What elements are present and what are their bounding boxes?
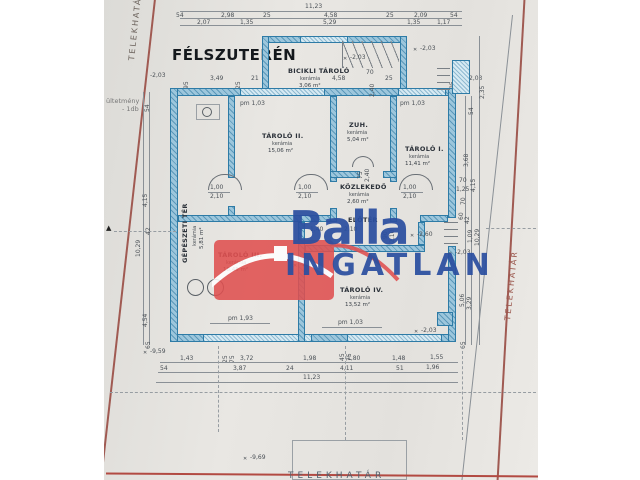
site-dash-line <box>218 346 219 432</box>
boundary-label-right: TELEKHATÁR <box>503 250 519 321</box>
reference-dash-line <box>486 228 536 229</box>
reference-dash-line <box>114 231 176 232</box>
window-label: pm 1,93 <box>228 315 253 322</box>
window-label: pm 1,03 <box>338 319 363 326</box>
property-boundary-line-right <box>496 0 525 480</box>
exterior-steps <box>437 64 450 90</box>
dim-label: 21 <box>251 75 259 82</box>
dim-label: 1,98 <box>303 355 316 362</box>
level-marker-icon: ✕ <box>414 329 418 335</box>
level-marker-icon: ✕ <box>343 56 347 62</box>
dim-label: 1,48 <box>392 355 405 362</box>
door-width: 75 <box>357 171 364 179</box>
dim-label: 1,09 <box>467 230 474 243</box>
dim-label: 1,80 <box>347 355 360 362</box>
dim-label: 4,15 <box>142 194 149 207</box>
door-height: 2,10 <box>298 193 311 200</box>
level-label: -9,59 <box>150 348 166 355</box>
room-area: 5,81 m² <box>199 227 205 249</box>
dim-label: 1,17 <box>437 19 450 26</box>
scanned-floor-plan: TELEKHATÁR TELEKHATÁR FÉLSZUTERÉN ültetm… <box>0 0 640 480</box>
sink-basin <box>202 107 212 117</box>
room-name-taroloi: TÁROLÓ I. <box>405 145 444 153</box>
dim-label: 1,35 <box>407 19 420 26</box>
dim-label: 11,23 <box>305 3 322 10</box>
wall <box>262 36 269 96</box>
wall <box>170 88 178 342</box>
level-label: -2,03 <box>150 72 166 79</box>
dim-label: 1,55 <box>430 354 443 361</box>
dim-label: 25 <box>385 75 393 82</box>
dim-label: 10,29 <box>135 240 142 257</box>
dim-label: 1,35 <box>240 19 253 26</box>
dim-label: 5,06 <box>459 294 466 307</box>
room-name-kozlekedo: KÖZLEKEDŐ <box>340 183 387 191</box>
level-label: -2,60 <box>417 231 433 238</box>
dim-label: 70 <box>366 69 374 76</box>
dim-label: 4,15 <box>470 179 477 192</box>
dim-label: 2,98 <box>221 12 234 19</box>
window <box>203 334 312 342</box>
level-label: -2,03 <box>420 45 436 52</box>
dim-label: 1,96 <box>426 364 439 371</box>
level-marker-icon: ✕ <box>413 47 417 53</box>
room-finish: kerámia <box>349 192 369 198</box>
dim-label: 54 <box>450 12 458 19</box>
dim-line <box>149 92 150 345</box>
dim-label: 2,40 <box>369 84 376 97</box>
window <box>240 88 325 96</box>
room-finish: kerámia <box>347 130 367 136</box>
washer-symbol <box>187 279 204 296</box>
dim-label: 54 <box>176 12 184 19</box>
room-area: 13,52 m² <box>345 302 370 308</box>
door-height: 2,10 <box>210 193 223 200</box>
dim-label: 24 <box>286 365 294 372</box>
dim-label: 4,58 <box>324 12 337 19</box>
level-label: -2,03 <box>421 327 437 334</box>
boundary-label-left: TELEKHATÁR <box>127 0 143 61</box>
wall <box>437 312 453 326</box>
room-area: 15,06 m² <box>268 148 293 154</box>
dim-label: 54 <box>468 107 475 115</box>
door-height: 2,10 <box>403 193 416 200</box>
watermark-brand-subtext: INGATLAN <box>285 250 495 282</box>
room-area: 11,41 m² <box>405 161 430 167</box>
dim-label: 5,29 <box>323 19 336 26</box>
room-name-zuh: ZUH. <box>349 121 368 129</box>
window <box>347 334 442 342</box>
dim-line <box>143 92 144 345</box>
level-label: -2,03 <box>350 54 366 61</box>
dim-label: 2,03 <box>469 75 482 82</box>
room-area: 5,04 m² <box>347 137 369 143</box>
dim-line <box>160 362 458 363</box>
dim-label: 3,29 <box>466 297 473 310</box>
dim-label: 3,68 <box>463 154 470 167</box>
entry-steps <box>444 218 458 244</box>
dim-line <box>479 36 480 345</box>
dim-label: 2,35 <box>479 86 486 99</box>
site-dash-line <box>462 346 463 440</box>
dim-label: 3,49 <box>210 75 223 82</box>
wall <box>228 96 235 178</box>
window-label: pm 1,03 <box>400 100 425 107</box>
dim-label: 25 <box>263 12 271 19</box>
dim-label: 4,54 <box>142 314 149 327</box>
door-height: 2,40 <box>364 169 371 182</box>
dim-label: 2,09 <box>414 12 427 19</box>
door-width: 1,00 <box>298 184 311 191</box>
window-label: pm 1,03 <box>240 100 265 107</box>
dim-label: 3,87 <box>233 365 246 372</box>
dim-label: 42 <box>464 216 471 224</box>
dim-label: 70 <box>459 177 467 184</box>
dim-label: 4,11 <box>340 365 353 372</box>
level-marker-icon: ✕ <box>243 456 247 462</box>
level-marker-icon: ✕ <box>410 233 414 239</box>
room-name-taroloii: TÁROLÓ II. <box>262 132 304 140</box>
wall <box>383 171 397 178</box>
window-leader <box>322 327 382 328</box>
level-marker-icon: ✕ <box>143 350 147 356</box>
room-finish: kerámia <box>300 76 320 82</box>
annotation-line2: - 1db <box>122 106 139 113</box>
page-title: FÉLSZUTERÉN <box>172 46 296 64</box>
watermark-brand-text: Balla <box>289 205 408 251</box>
dim-label: 51 <box>396 365 404 372</box>
dim-label: 70 <box>460 197 467 205</box>
room-finish: kerámia <box>409 154 429 160</box>
site-dash-line <box>110 392 536 393</box>
wall <box>448 88 456 218</box>
annotation-line1: ültetmény <box>106 98 139 105</box>
exterior-stair-wall <box>452 60 470 94</box>
boundary-label-bottom: TELEKHATÁR <box>288 471 385 480</box>
window-leader <box>210 323 270 324</box>
wall <box>330 171 360 178</box>
dim-label: 1,25 <box>456 186 469 193</box>
door-width: 1,00 <box>210 184 223 191</box>
dim-label: 10,29 <box>474 229 481 246</box>
level-label: -9,69 <box>250 454 266 461</box>
window <box>300 36 348 43</box>
dim-label: 1,43 <box>180 355 193 362</box>
wall <box>330 96 337 182</box>
wall <box>390 96 397 182</box>
dim-line <box>158 372 458 373</box>
dim-label: 54 <box>160 365 168 372</box>
dim-label: 11,23 <box>303 374 320 381</box>
dim-label: 3,72 <box>240 355 253 362</box>
door-width: 1,00 <box>403 184 416 191</box>
survey-marker-icon: ▲ <box>106 224 111 232</box>
wall <box>400 36 407 96</box>
dim-line <box>156 382 458 383</box>
room-finish: kerámia <box>272 141 292 147</box>
room-name-gepeszeti: GÉPÉSZETI TÉR <box>181 203 189 263</box>
site-dash-line <box>345 346 346 440</box>
dim-label: 25 <box>386 12 394 19</box>
room-area: 3,06 m² <box>299 83 321 89</box>
dim-label: 4,58 <box>332 75 345 82</box>
dim-label: 54 <box>144 104 151 112</box>
room-finish: kerámia <box>192 226 198 246</box>
room-name-bicikli: BICIKLI TÁROLÓ <box>288 67 350 75</box>
dim-label: 2,07 <box>197 19 210 26</box>
